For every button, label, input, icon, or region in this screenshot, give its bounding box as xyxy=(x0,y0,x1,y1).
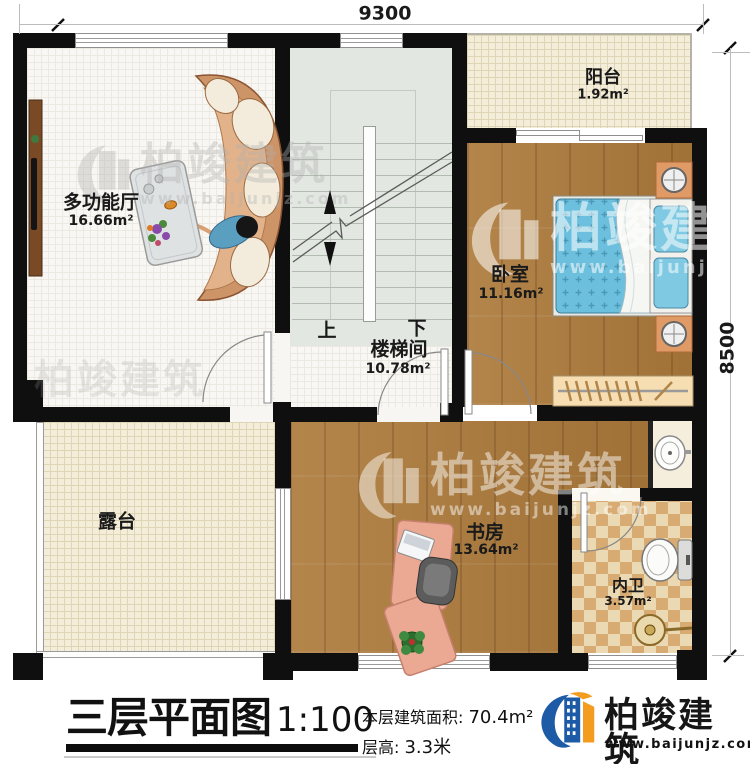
balcony-area: 1.92m² xyxy=(577,89,628,102)
door-hall xyxy=(203,332,271,403)
nightstand xyxy=(656,162,692,198)
bed xyxy=(553,196,692,316)
brand-name: 柏竣建筑 xyxy=(604,699,750,764)
plan-title: 三层平面图 xyxy=(66,697,271,739)
stairwell-area: 10.78m² xyxy=(365,362,430,376)
door-bedroom xyxy=(465,350,531,414)
toilet xyxy=(642,539,692,581)
floor-area-info: 本层建筑面积: 70.4m² xyxy=(362,708,533,728)
bedroom-area: 11.16m² xyxy=(478,287,543,301)
title-underline xyxy=(66,744,358,752)
brand-logo xyxy=(538,690,598,754)
shower-head xyxy=(635,615,692,645)
floorplan-canvas: 柏竣建筑 www.baijunjz.com 柏竣建筑 www.baijunjz.… xyxy=(0,0,750,764)
floor-height-info: 层高: 3.3米 xyxy=(362,738,451,758)
stair-down-label: 下 xyxy=(407,320,426,339)
extension-line xyxy=(19,4,20,34)
tv-cabinet xyxy=(29,100,42,276)
brand-website: www.baijunjz.com xyxy=(605,738,750,751)
desk-plant xyxy=(399,631,425,655)
balcony-label: 阳台 xyxy=(585,69,621,87)
study-area: 13.64m² xyxy=(453,543,518,557)
bathroom-area: 3.57m² xyxy=(604,595,651,607)
extension-line xyxy=(712,655,744,656)
hall-area: 16.66m² xyxy=(68,214,133,228)
dimension-top-value: 9300 xyxy=(354,5,417,24)
stair-up-label: 上 xyxy=(317,322,336,341)
furniture-layer xyxy=(0,0,750,764)
bedroom-label: 卧室 xyxy=(491,266,529,285)
sofa xyxy=(196,72,283,300)
bathroom-label: 内卫 xyxy=(612,578,644,594)
desk-chair xyxy=(415,556,459,607)
stair-break-line xyxy=(293,152,452,262)
coffee-table xyxy=(129,159,204,267)
door-bathroom xyxy=(581,493,641,552)
hall-label: 多功能厅 xyxy=(63,194,139,213)
floor-area-value: 70.4m² xyxy=(468,707,533,728)
extension-line xyxy=(712,52,750,53)
plan-scale: 1:100 xyxy=(276,703,374,737)
dimension-right-value: 8500 xyxy=(719,317,738,380)
nightstand xyxy=(656,316,692,352)
title-underline-thin xyxy=(64,756,376,758)
extension-line xyxy=(703,4,704,34)
sink xyxy=(655,436,691,470)
floor-height-label: 层高: xyxy=(362,738,404,757)
stair-direction-arrows xyxy=(324,190,336,266)
stairwell-label: 楼梯间 xyxy=(370,341,427,360)
terrace-label: 露台 xyxy=(98,513,136,532)
floor-height-value: 3.3米 xyxy=(404,737,451,758)
floor-area-label: 本层建筑面积: xyxy=(362,708,468,727)
wardrobe xyxy=(553,376,693,406)
study-label: 书房 xyxy=(466,524,504,543)
brand-logo-icon xyxy=(538,690,598,750)
